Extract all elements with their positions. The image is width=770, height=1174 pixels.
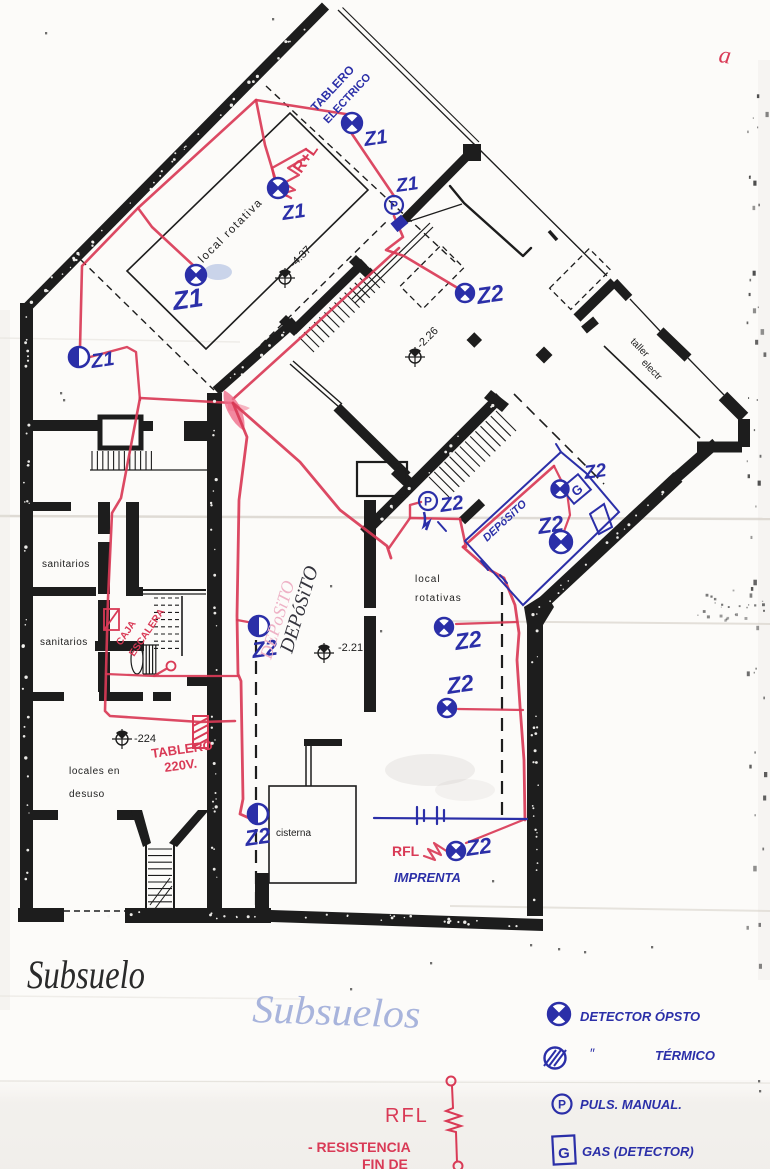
svg-text:P: P <box>390 199 398 213</box>
svg-text:sanitarios: sanitarios <box>40 637 88 648</box>
svg-text:Z1: Z1 <box>280 200 307 225</box>
svg-text:Z2: Z2 <box>474 279 505 309</box>
svg-text:locales en: locales en <box>69 766 120 777</box>
svg-text:RFL: RFL <box>385 1105 429 1127</box>
svg-text:″: ″ <box>590 1045 595 1061</box>
svg-text:GAS (DETECTOR): GAS (DETECTOR) <box>582 1144 694 1159</box>
svg-text:TÉRMICO: TÉRMICO <box>655 1048 715 1063</box>
svg-text:Z2: Z2 <box>452 625 483 655</box>
svg-text:desuso: desuso <box>69 789 105 800</box>
svg-text:cisterna: cisterna <box>276 828 311 839</box>
svg-text:DETECTOR ÓPSTO: DETECTOR ÓPSTO <box>580 1009 700 1024</box>
svg-text:Subsuelo: Subsuelo <box>27 952 145 997</box>
svg-text:IMPRENTA: IMPRENTA <box>394 870 461 885</box>
svg-text:PULS. MANUAL.: PULS. MANUAL. <box>580 1097 682 1112</box>
svg-text:Z2: Z2 <box>582 460 608 484</box>
svg-text:rotativas: rotativas <box>415 593 462 604</box>
svg-text:G: G <box>558 1145 570 1162</box>
svg-text:sanitarios: sanitarios <box>42 559 90 570</box>
svg-text:Z1: Z1 <box>89 348 116 373</box>
svg-text:Z2: Z2 <box>438 492 465 517</box>
svg-text:P: P <box>558 1098 566 1112</box>
svg-text:Z2: Z2 <box>242 823 273 852</box>
svg-text:P: P <box>424 495 432 509</box>
svg-text:Subsuelos: Subsuelos <box>252 986 421 1037</box>
svg-text:Z2: Z2 <box>535 511 566 540</box>
svg-text:- RESISTENCIA: - RESISTENCIA <box>308 1139 411 1155</box>
svg-text:Z2: Z2 <box>463 833 494 862</box>
svg-text:-224: -224 <box>134 733 156 745</box>
svg-text:Z1: Z1 <box>362 126 389 151</box>
svg-text:Z1: Z1 <box>394 173 420 197</box>
svg-text:local: local <box>415 574 441 585</box>
svg-text:Z2: Z2 <box>444 669 475 699</box>
svg-text:FIN DE: FIN DE <box>362 1156 408 1169</box>
svg-text:Z1: Z1 <box>170 282 205 316</box>
svg-text:-2.21: -2.21 <box>338 642 363 654</box>
svg-text:RFL: RFL <box>392 843 420 859</box>
